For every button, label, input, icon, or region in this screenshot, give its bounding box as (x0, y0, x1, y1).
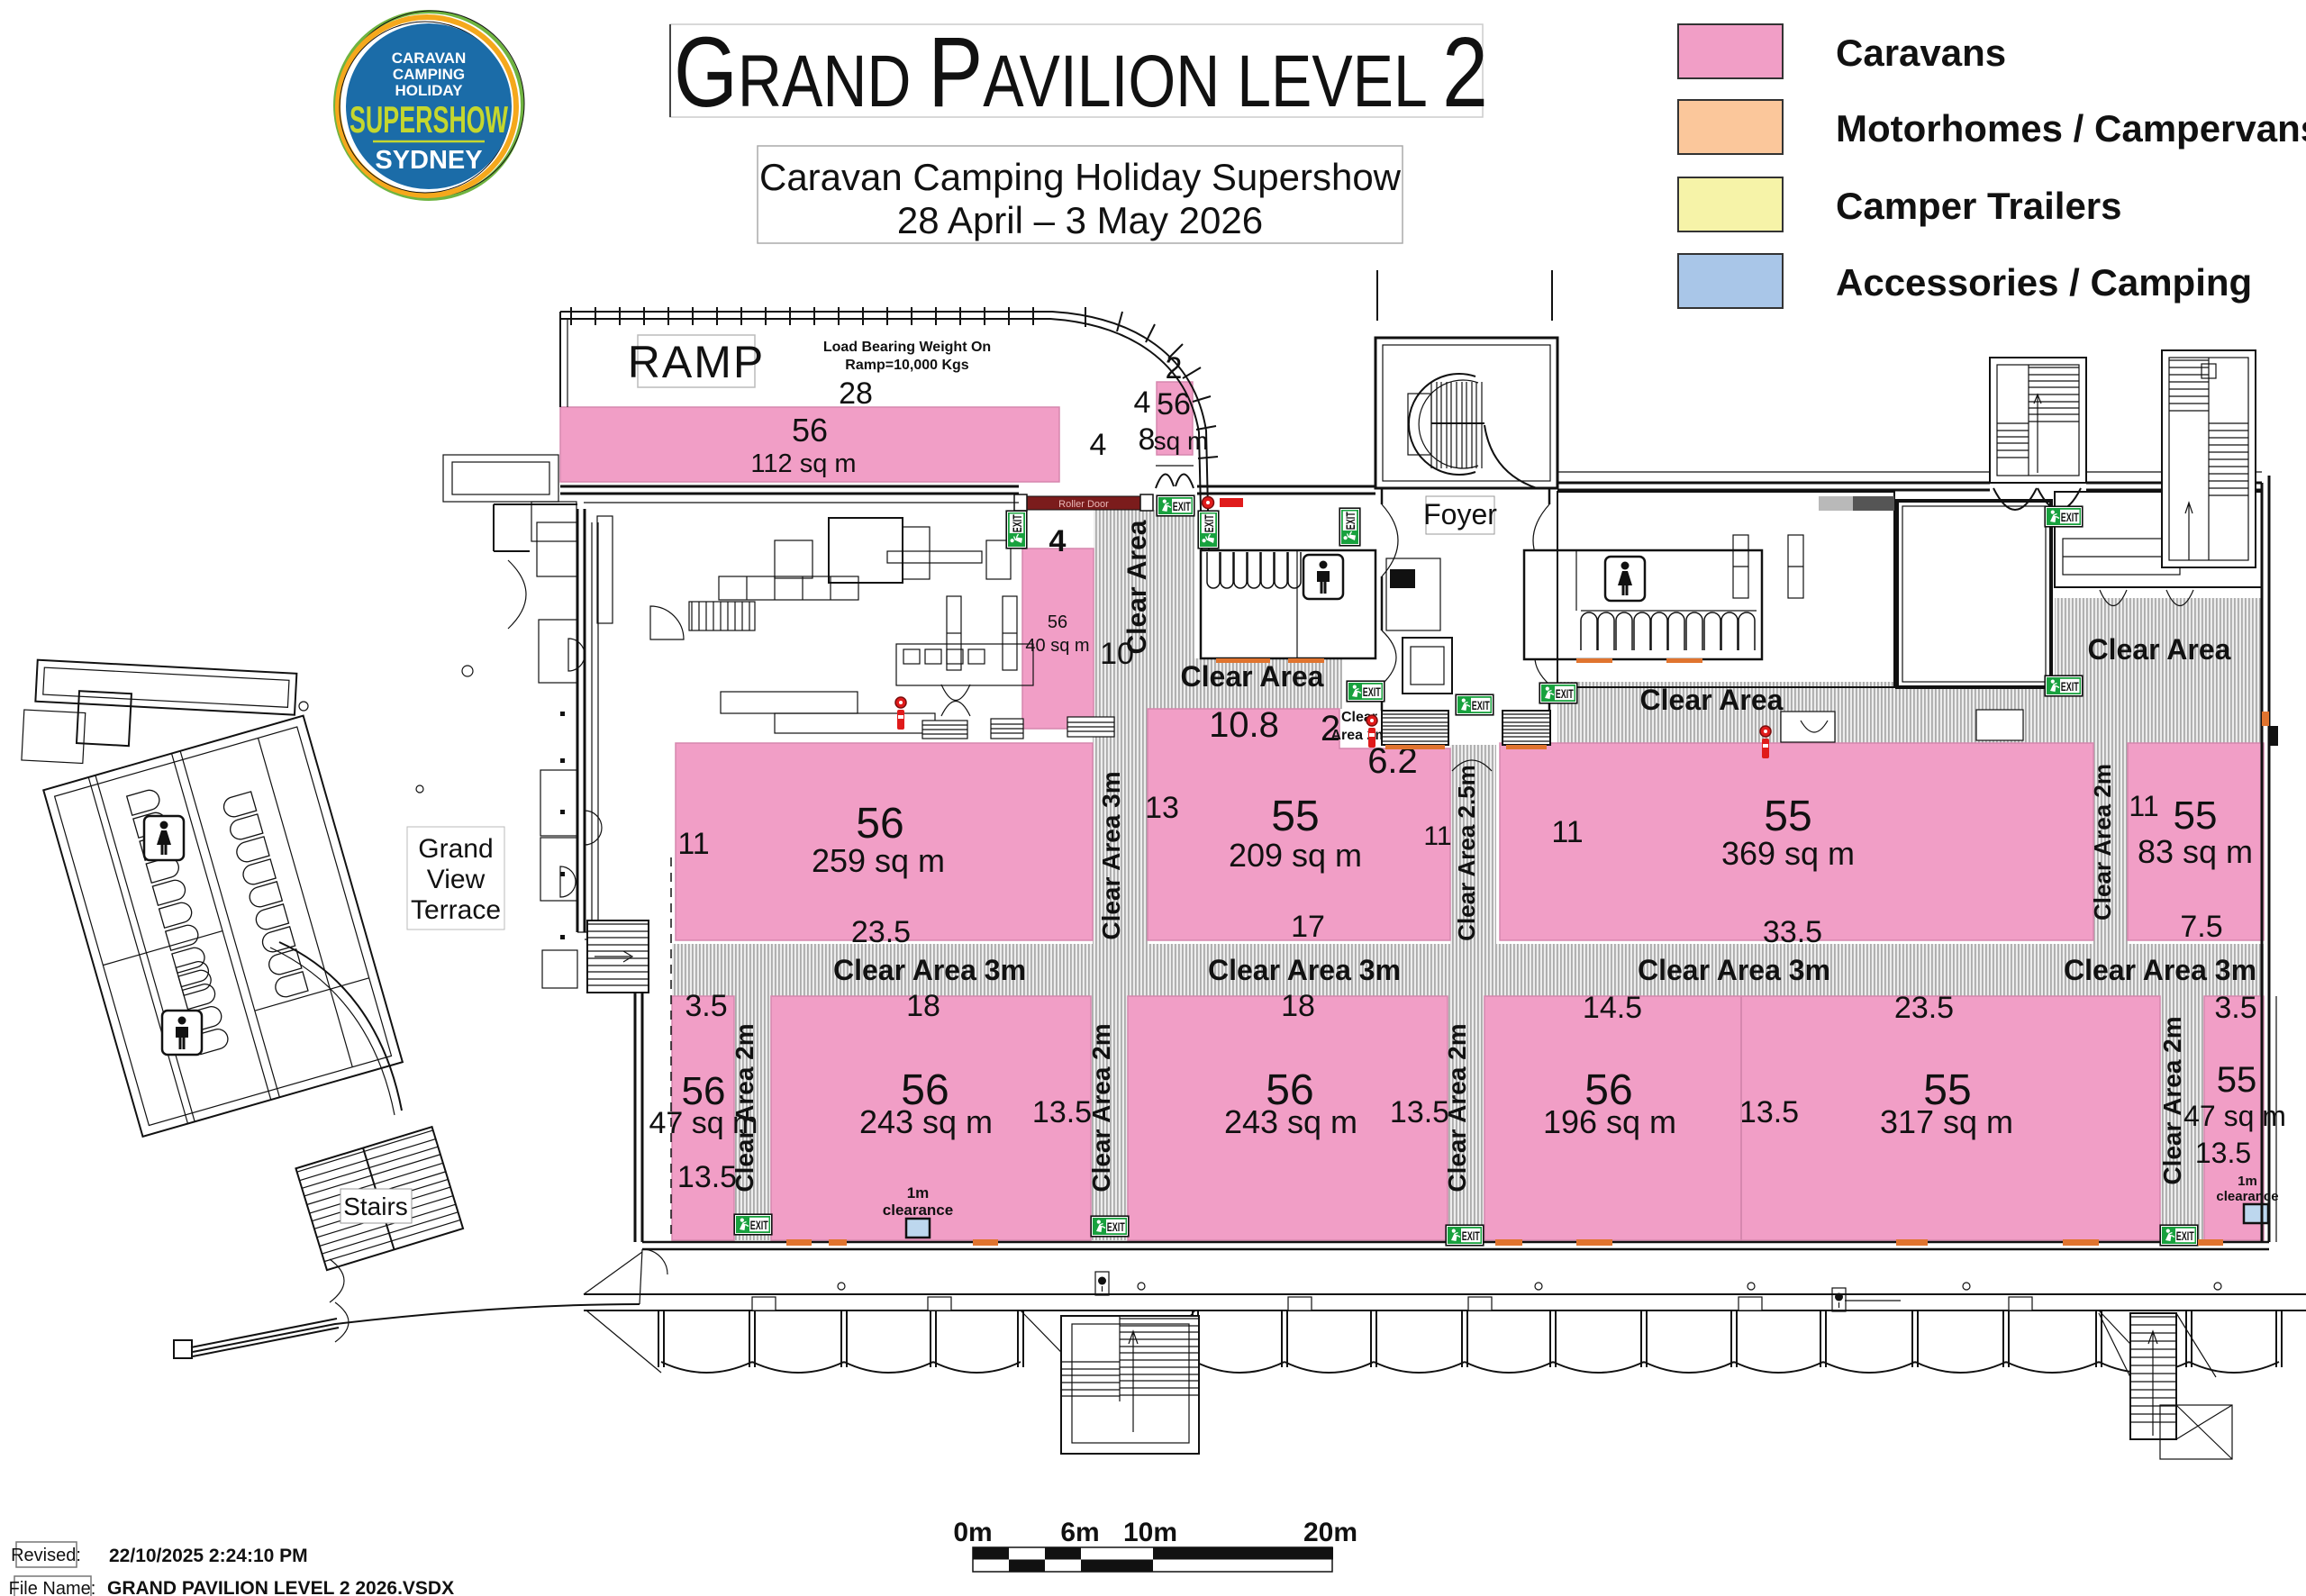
svg-text:Clear Area 2m: Clear Area 2m (1443, 1023, 1471, 1192)
svg-text:GRAND PAVILION LEVEL 2 2026.VS: GRAND PAVILION LEVEL 2 2026.VSDX (107, 1578, 454, 1596)
svg-text:SYDNEY: SYDNEY (375, 146, 482, 175)
svg-text:11: 11 (1551, 815, 1583, 849)
svg-text:Clear Area 2m: Clear Area 2m (731, 1023, 758, 1192)
svg-text:3.5: 3.5 (2214, 991, 2256, 1025)
svg-text:14.5: 14.5 (1583, 991, 1642, 1025)
svg-text:28 April – 3 May 2026: 28 April – 3 May 2026 (897, 199, 1263, 241)
svg-text:56: 56 (792, 412, 828, 449)
svg-text:23.5: 23.5 (851, 915, 911, 949)
svg-text:20m: 20m (1303, 1518, 1357, 1547)
svg-text:11: 11 (2129, 790, 2158, 822)
svg-text:CARAVAN: CARAVAN (392, 50, 466, 67)
svg-text:Caravan Camping Holiday Supers: Caravan Camping Holiday Supershow (759, 156, 1402, 198)
svg-text:Clear Area 2m: Clear Area 2m (1087, 1023, 1115, 1192)
svg-text:4: 4 (1134, 385, 1151, 420)
svg-text:Clear Area: Clear Area (1181, 660, 1324, 693)
svg-text:196 sq m: 196 sq m (1543, 1103, 1676, 1140)
svg-text:13.5: 13.5 (677, 1160, 737, 1194)
svg-text:Clear Area: Clear Area (2088, 633, 2231, 666)
svg-text:23.5: 23.5 (1894, 991, 1954, 1025)
svg-text:8: 8 (1139, 422, 1156, 457)
svg-text:1m: 1m (2238, 1174, 2257, 1189)
svg-text:View: View (427, 865, 486, 894)
svg-text:Revised:: Revised: (11, 1546, 81, 1565)
svg-text:Camper Trailers: Camper Trailers (1836, 185, 2122, 227)
svg-text:Roller Door: Roller Door (1058, 499, 1109, 510)
svg-text:Terrace: Terrace (411, 895, 501, 925)
svg-text:CAMPING: CAMPING (393, 66, 465, 83)
svg-text:HOLIDAY: HOLIDAY (395, 82, 464, 99)
svg-text:Clear Area: Clear Area (1122, 520, 1152, 654)
svg-text:Grand: Grand (418, 834, 493, 864)
svg-text:Clear Area 2m: Clear Area 2m (2158, 1016, 2186, 1184)
svg-text:Clear Area 3m: Clear Area 3m (2064, 954, 2256, 986)
svg-text:SUPERSHOW: SUPERSHOW (350, 98, 508, 141)
svg-text:83 sq m: 83 sq m (2138, 833, 2253, 870)
svg-text:4: 4 (1049, 524, 1067, 558)
svg-text:Caravans: Caravans (1836, 32, 2006, 74)
svg-text:1m: 1m (907, 1184, 930, 1202)
svg-text:Clear Area: Clear Area (1640, 684, 1784, 716)
svg-text:40 sq m: 40 sq m (1025, 636, 1089, 656)
svg-text:13.5: 13.5 (1032, 1095, 1092, 1129)
svg-text:13.5: 13.5 (2195, 1137, 2251, 1169)
svg-text:17: 17 (1291, 910, 1325, 944)
svg-text:3.5: 3.5 (685, 989, 727, 1023)
svg-text:Clear Area 3m: Clear Area 3m (1638, 954, 1830, 986)
svg-text:22/10/2025 2:24:10 PM: 22/10/2025 2:24:10 PM (109, 1546, 308, 1566)
svg-text:Ramp=10,000 Kgs: Ramp=10,000 Kgs (845, 358, 969, 373)
svg-text:Accessories / Camping: Accessories / Camping (1836, 261, 2252, 304)
svg-text:Clear Area 3m: Clear Area 3m (833, 954, 1026, 986)
svg-text:55: 55 (2174, 793, 2218, 838)
svg-text:4: 4 (1090, 428, 1107, 462)
svg-text:0m: 0m (953, 1518, 992, 1547)
svg-text:13.5: 13.5 (1390, 1095, 1449, 1129)
svg-text:clearance: clearance (883, 1202, 953, 1219)
svg-text:Clear Area 2m: Clear Area 2m (2089, 764, 2116, 920)
svg-text:112 sq m: 112 sq m (750, 449, 856, 478)
svg-text:55: 55 (2217, 1060, 2257, 1100)
svg-text:10m: 10m (1123, 1518, 1177, 1547)
svg-text:33.5: 33.5 (1763, 915, 1822, 949)
svg-text:Clear Area 3m: Clear Area 3m (1097, 771, 1125, 939)
svg-text:Area 2m: Area 2m (1330, 728, 1387, 743)
svg-text:Clear Area 2.5m: Clear Area 2.5m (1453, 765, 1480, 941)
svg-text:RAMP: RAMP (628, 337, 765, 387)
svg-text:Stairs: Stairs (343, 1192, 408, 1220)
svg-text:6m: 6m (1060, 1518, 1099, 1547)
svg-text:10.8: 10.8 (1209, 705, 1279, 745)
svg-text:47 sq m: 47 sq m (2183, 1100, 2286, 1132)
svg-text:Load Bearing Weight On: Load Bearing Weight On (823, 340, 991, 355)
svg-text:18: 18 (906, 989, 940, 1023)
svg-text:28: 28 (839, 376, 873, 411)
svg-text:259 sq m: 259 sq m (812, 842, 945, 879)
svg-text:13.5: 13.5 (1739, 1095, 1799, 1129)
svg-text:11: 11 (677, 827, 709, 861)
svg-text:243 sq m: 243 sq m (859, 1103, 993, 1140)
svg-text:Motorhomes / Campervans: Motorhomes / Campervans (1836, 107, 2306, 150)
svg-text:56: 56 (1048, 612, 1067, 632)
svg-text:55: 55 (1764, 793, 1811, 840)
svg-text:7.5: 7.5 (2180, 910, 2222, 944)
svg-text:369 sq m: 369 sq m (1721, 835, 1855, 872)
svg-text:317 sq m: 317 sq m (1880, 1103, 2013, 1140)
svg-text:GRAND PAVILION LEVEL 2: GRAND PAVILION LEVEL 2 (674, 18, 1488, 128)
svg-text:Foyer: Foyer (1423, 498, 1497, 530)
svg-text:11: 11 (1423, 821, 1451, 851)
svg-text:18: 18 (1281, 989, 1315, 1023)
svg-text:13: 13 (1145, 791, 1179, 825)
svg-text:File Name:: File Name: (9, 1579, 96, 1596)
svg-text:Clear Area 3m: Clear Area 3m (1208, 954, 1401, 986)
svg-text:243 sq m: 243 sq m (1224, 1103, 1357, 1140)
svg-text:55: 55 (1271, 793, 1319, 840)
svg-text:56: 56 (856, 800, 903, 848)
svg-text:209 sq m: 209 sq m (1229, 837, 1362, 874)
